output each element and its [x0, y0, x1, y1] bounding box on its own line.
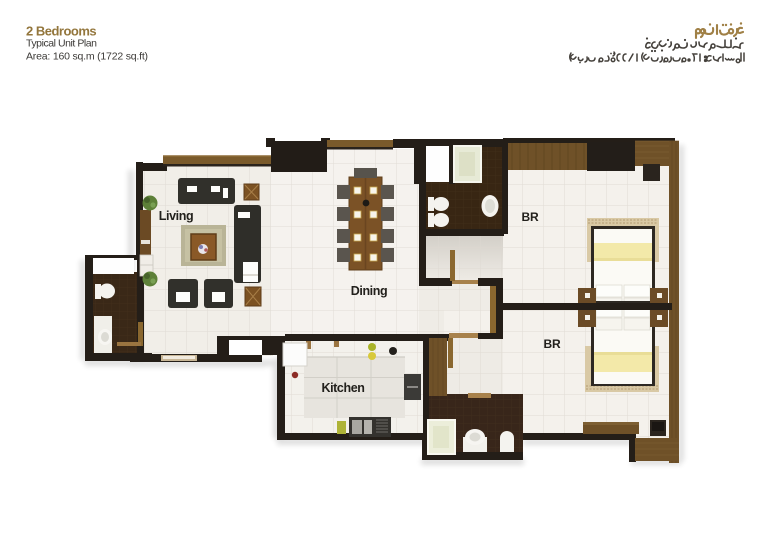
svg-text:Area: 160 sq.m (1722 sq.ft): Area: 160 sq.m (1722 sq.ft) — [26, 51, 148, 63]
svg-text:BR: BR — [522, 210, 539, 224]
svg-text:BR: BR — [544, 337, 561, 351]
svg-text:Typical Unit Plan: Typical Unit Plan — [26, 38, 97, 50]
svg-text:Dining: Dining — [351, 284, 387, 298]
svg-text:Living: Living — [159, 209, 193, 223]
svg-text:Kitchen: Kitchen — [321, 381, 364, 395]
svg-text:2 Bedrooms: 2 Bedrooms — [26, 24, 96, 39]
